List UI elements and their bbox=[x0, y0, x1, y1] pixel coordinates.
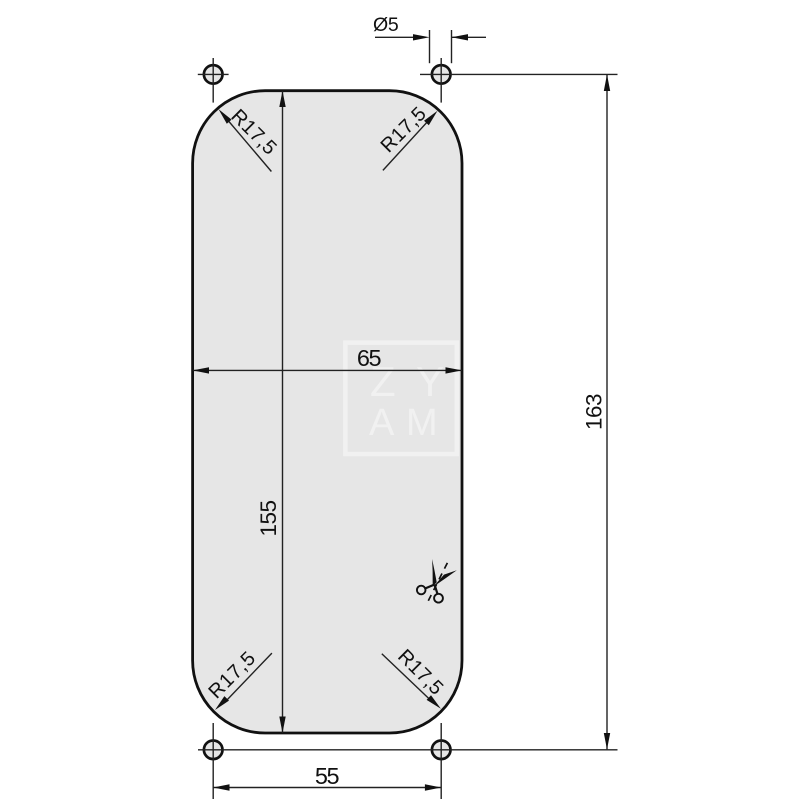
svg-text:M: M bbox=[406, 402, 438, 444]
svg-text:55: 55 bbox=[315, 763, 340, 789]
svg-text:155: 155 bbox=[256, 500, 281, 536]
svg-text:163: 163 bbox=[582, 394, 607, 430]
svg-text:65: 65 bbox=[357, 345, 382, 371]
svg-text:A: A bbox=[369, 402, 395, 444]
svg-text:Y: Y bbox=[416, 358, 444, 405]
svg-text:Ø5: Ø5 bbox=[373, 14, 399, 36]
